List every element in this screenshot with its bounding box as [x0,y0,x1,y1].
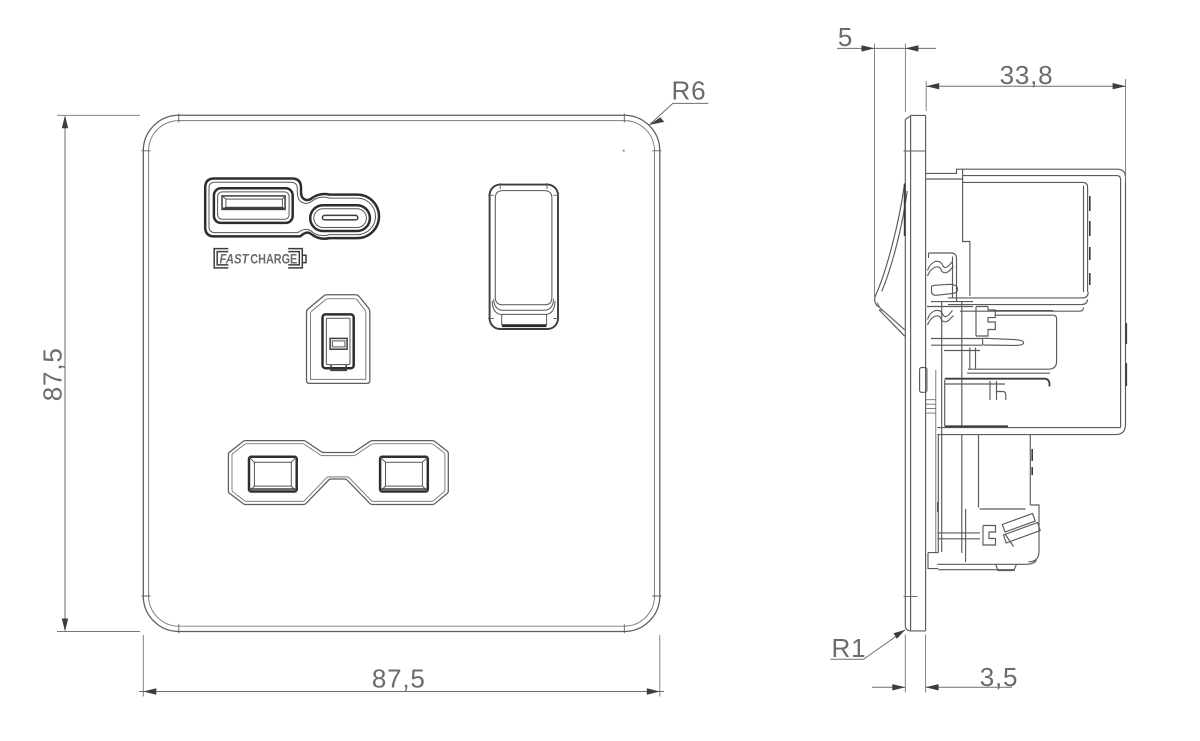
svg-text:3,5: 3,5 [980,662,1019,692]
svg-text:87,5: 87,5 [372,664,426,694]
svg-text:33,8: 33,8 [1000,60,1054,90]
svg-text:5: 5 [838,22,853,52]
svg-text:R6: R6 [672,76,707,106]
svg-text:87,5: 87,5 [38,347,68,401]
svg-text:R1: R1 [832,633,867,663]
svg-text:CHARGE: CHARGE [250,251,297,267]
svg-text:FAST: FAST [220,251,250,267]
